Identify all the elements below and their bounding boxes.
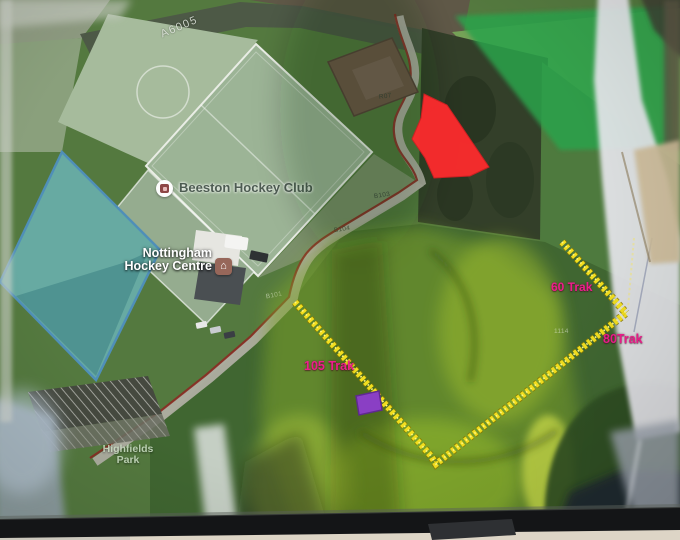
map-annotations [0,0,680,540]
purple-marker[interactable] [356,391,382,415]
tablet-screen-photo: A6005 Beeston Hockey Club Nottingham Hoc… [0,0,680,540]
red-zone-polygon[interactable] [412,94,489,178]
track-line-faint [628,238,634,308]
track-label-60[interactable]: 60 Trak [551,281,592,294]
track-label-80[interactable]: 80Trak [603,333,643,346]
track-label-105[interactable]: 105 Trak [304,360,354,373]
track-line-60[interactable] [562,242,626,313]
track-line-105-80[interactable] [295,302,626,464]
